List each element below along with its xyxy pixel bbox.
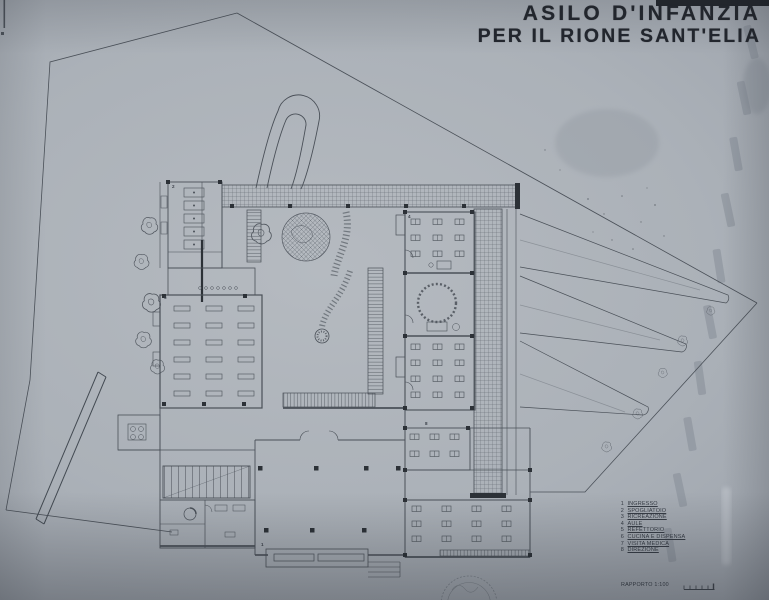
tree-icon xyxy=(142,294,160,312)
bush-icon xyxy=(658,368,667,377)
direzione-rooms xyxy=(160,500,255,548)
legend-item: 5REFETTORIO xyxy=(619,527,685,534)
walkway-end-cap xyxy=(515,183,520,209)
teacher-desk xyxy=(437,261,451,269)
aule-block xyxy=(396,210,475,410)
classroom-b-circle xyxy=(418,284,460,331)
south-classrooms xyxy=(403,426,532,557)
stepped-path xyxy=(334,212,347,276)
chair-ring xyxy=(418,284,456,322)
photo-stain xyxy=(555,109,659,177)
room-marker: 2 xyxy=(172,184,175,189)
classroom-c-desks xyxy=(411,344,464,398)
room-legend: 1INGRESSO 2SPOGLIATOIO 3RICREAZIONE 4AUL… xyxy=(619,501,685,554)
tree-icon xyxy=(151,360,165,374)
refettorio-block xyxy=(153,294,262,408)
garden-strip xyxy=(520,276,686,352)
legend-item: 8DIREZIONE xyxy=(619,547,685,554)
locker-stall xyxy=(184,188,204,197)
entry-ramp xyxy=(36,372,106,524)
classroom-d-desks xyxy=(410,434,459,457)
columns xyxy=(258,466,401,533)
legend-item: 4AULE xyxy=(619,521,685,528)
architect-stamp xyxy=(441,576,497,600)
room-marker: 1 xyxy=(261,542,264,547)
side-steps xyxy=(368,562,400,577)
tree-icon xyxy=(141,217,157,234)
locker-stall xyxy=(184,201,204,210)
entrance-atrium xyxy=(255,410,405,557)
dining-tables xyxy=(174,306,254,396)
court-walkways xyxy=(283,268,405,408)
left-edge-mark xyxy=(4,0,6,28)
entrance-steps xyxy=(266,549,400,577)
stepped-path xyxy=(322,271,350,327)
aule-walkway xyxy=(470,209,516,498)
locker-stall xyxy=(184,227,204,236)
tree-icon xyxy=(136,332,152,348)
loop-path xyxy=(256,95,320,189)
bush-icon xyxy=(633,409,643,419)
pergola-walkway xyxy=(222,183,520,209)
legend-item: 6CUCINA E DISPENSA xyxy=(619,534,685,541)
title-line-2: PER IL RIONE SANT'ELIA xyxy=(478,25,761,47)
title-line-1: ASILO D'INFANZIA xyxy=(478,2,761,25)
legend-item: 1INGRESSO xyxy=(619,501,685,508)
room-marker: 4 xyxy=(408,214,411,219)
court-stair xyxy=(247,210,261,262)
spogliatoio-block xyxy=(160,180,222,302)
tree-icon xyxy=(134,254,149,269)
photo-of-architectural-plan: ASILO D'INFANZIA PER IL RIONE SANT'ELIA … xyxy=(0,0,769,600)
room-marker: 5 xyxy=(164,295,167,300)
locker-stall xyxy=(184,214,204,223)
room-marker: 8 xyxy=(425,421,428,426)
legend-item: 7VISITA MEDICA xyxy=(619,541,685,548)
photo-artifacts xyxy=(1,0,769,565)
photo-scratch xyxy=(722,487,731,565)
right-edge-dash-band xyxy=(663,25,759,563)
play-circle xyxy=(282,213,330,261)
legend-item: 2SPOGLIATOIO xyxy=(619,508,685,515)
grand-stair xyxy=(163,466,250,498)
garden-strip xyxy=(520,341,648,415)
scale-label: RAPPORTO 1:100 xyxy=(621,582,669,588)
counter-dots xyxy=(199,287,238,290)
legend-item: 3RICREAZIONE xyxy=(619,514,685,521)
bush-icon xyxy=(602,442,612,452)
classroom-e-desks xyxy=(412,506,511,542)
classroom-a-desks xyxy=(411,219,464,269)
cucina-room xyxy=(168,268,255,295)
scale-bar xyxy=(684,584,715,590)
walkway-end-cap xyxy=(470,493,506,498)
drawing-title: ASILO D'INFANZIA PER IL RIONE SANT'ELIA xyxy=(478,2,761,47)
